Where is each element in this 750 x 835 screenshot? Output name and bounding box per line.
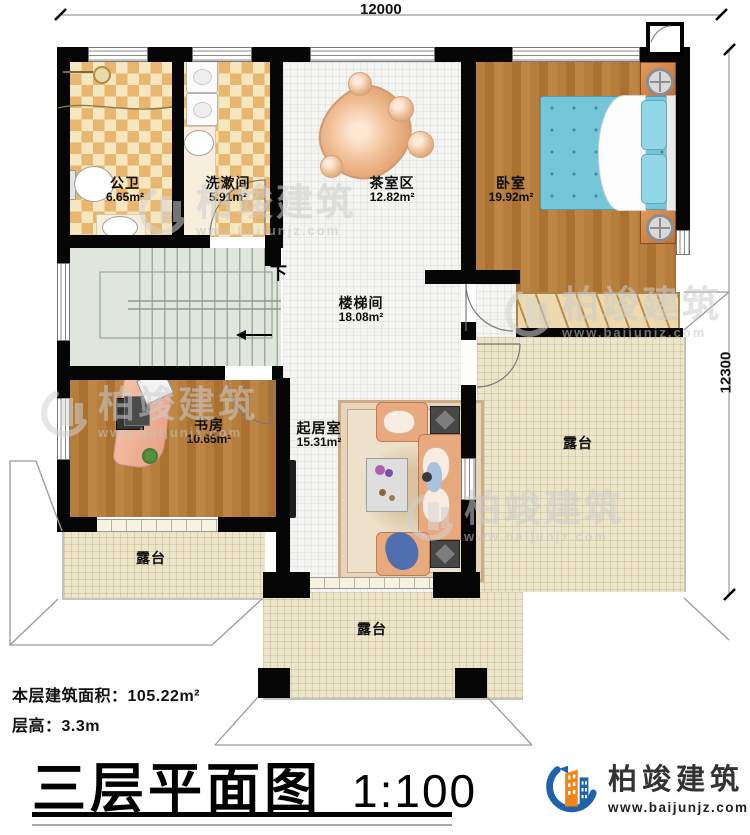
room-area: 19.92m²: [489, 191, 534, 204]
wall-study-terrace-right: [218, 517, 290, 532]
brand-text: 柏竣建筑 www.baijunjz.com: [608, 766, 749, 815]
nightstand-bottom: [640, 208, 676, 244]
dish-decor: [379, 489, 386, 496]
tea-stone-2: [388, 96, 414, 122]
room-name: 茶室区: [370, 176, 415, 191]
wall-corridor-terrace-stub: [461, 322, 476, 340]
wall-study-terrace-left: [57, 517, 97, 532]
terrace-label-left: 露台: [136, 551, 166, 566]
coffee-table: [366, 458, 408, 512]
pillow-2: [641, 154, 667, 204]
room-name: 洗漱间: [206, 176, 251, 191]
floor-height-value: 3.3m: [62, 718, 100, 735]
terrace-name: 露台: [563, 436, 593, 451]
room-label-living-room: 起居室 15.31m²: [297, 421, 342, 449]
terrace-label-bottom: 露台: [357, 622, 387, 637]
shower-head: [93, 66, 111, 84]
tea-stone-1: [348, 72, 372, 96]
cushion: [383, 410, 415, 434]
window-study: [57, 398, 70, 460]
flower-decor: [385, 469, 393, 477]
terrace-right-floor: [477, 337, 686, 592]
room-area: 10.65m²: [187, 433, 232, 446]
side-table-top: [430, 406, 460, 434]
brand-footer: 柏竣建筑 www.baijunjz.com: [538, 762, 749, 818]
window-bedroom-right: [676, 230, 690, 255]
pillar-right: [455, 668, 487, 698]
floor-plan-canvas: 公卫 6.65m² 洗漱间 5.91m² 茶室区 12.82m² 卧室 19.9…: [0, 0, 750, 835]
wall-wash-tea: [270, 47, 283, 248]
lamp-icon: [646, 214, 674, 242]
room-label-tea-area: 茶室区 12.82m²: [370, 176, 415, 204]
plant: [142, 448, 158, 464]
terrace-label-right: 露台: [563, 436, 593, 451]
wall-bath-wash: [172, 47, 184, 248]
wall-wash-bottom-stub: [265, 235, 283, 248]
study-terrace-threshold: [97, 519, 218, 532]
room-label-bathroom: 公卫 6.65m²: [106, 176, 144, 204]
wall-stair-study-left: [57, 366, 225, 380]
pillow-1: [641, 100, 667, 150]
wall-bedroom-right: [676, 47, 690, 230]
room-label-study: 书房 10.65m²: [187, 418, 232, 446]
room-name: 起居室: [297, 421, 342, 436]
floor-area-value: 105.22m²: [128, 688, 201, 705]
floor-height-info: 层高：3.3m: [12, 712, 100, 736]
tea-stone-3: [407, 131, 434, 158]
stair-treads: [128, 248, 281, 366]
brand-url: www.baijunjz.com: [608, 800, 749, 815]
tea-stone-4: [320, 155, 343, 178]
wall-bedroom-bottom: [425, 270, 520, 284]
window-tea-area: [310, 47, 435, 62]
room-label-stairwell: 楼梯间 18.08m²: [339, 296, 384, 324]
brand-name: 柏竣建筑: [608, 766, 749, 795]
study-floor: [70, 380, 276, 517]
room-area: 12.82m²: [370, 191, 415, 204]
room-name: 卧室: [489, 176, 534, 191]
room-area: 15.31m²: [297, 436, 342, 449]
stair-down-label: 下: [270, 259, 287, 284]
wall-living-bottom-left: [263, 572, 310, 598]
wall-living-bottom-right: [433, 572, 480, 598]
wall-bath-bottom: [57, 235, 210, 248]
vestibule-floor: [476, 284, 516, 340]
dim-tick: [724, 589, 735, 600]
room-label-bedroom: 卧室 19.92m²: [489, 176, 534, 204]
drawing-title: 三层平面图 1:100: [32, 744, 477, 823]
dim-tick: [55, 9, 66, 20]
bed-blanket: [598, 95, 646, 211]
wall-living-terrace-upper: [461, 385, 476, 458]
washroom-sink: [184, 130, 214, 156]
floor-area-label: 本层建筑面积：: [12, 688, 128, 705]
side-table-bottom: [430, 540, 460, 568]
floor-area-info: 本层建筑面积：105.22m²: [12, 682, 200, 706]
chimney: [646, 22, 684, 56]
bathroom-floor: [70, 62, 173, 237]
terrace-name: 露台: [357, 622, 387, 637]
wall-study-living: [276, 378, 290, 598]
room-area: 18.08m²: [339, 311, 384, 324]
wall-tea-bedroom: [461, 47, 476, 272]
room-name: 书房: [187, 418, 232, 433]
room-area: 5.91m²: [206, 191, 251, 204]
window-bathroom: [88, 47, 148, 62]
brand-logo-icon: [538, 762, 600, 818]
lamp-icon: [646, 68, 674, 96]
person-head: [422, 472, 432, 482]
pillar-left: [258, 668, 290, 698]
dim-tick: [724, 44, 735, 55]
living-terrace-threshold: [310, 577, 433, 589]
room-label-washroom: 洗漱间 5.91m²: [206, 176, 251, 204]
floor-height-label: 层高：: [12, 718, 62, 735]
room-area: 6.65m²: [106, 191, 144, 204]
sofa-right: [418, 434, 466, 540]
nightstand-top: [640, 62, 676, 98]
window-living-terrace: [461, 458, 476, 500]
terrace-name: 露台: [136, 551, 166, 566]
window-stairwell: [57, 263, 70, 341]
dish-decor: [389, 495, 395, 501]
dim-tick: [716, 9, 727, 20]
cushion: [422, 487, 450, 523]
washing-machine-2: [186, 93, 218, 126]
drawing-scale: 1:100: [352, 764, 477, 818]
drawing-title-text: 三层平面图: [32, 744, 322, 823]
dim-right-value: 12300: [718, 342, 735, 404]
room-name: 楼梯间: [339, 296, 384, 311]
title-underline-thin: [32, 824, 452, 826]
wardrobe-base-wall: [516, 328, 683, 337]
dim-top-value: 12000: [360, 1, 402, 18]
bed-headboard: [666, 95, 676, 211]
room-name: 公卫: [106, 176, 144, 191]
wardrobe: [516, 292, 680, 332]
window-washroom: [192, 47, 252, 62]
washing-machine-1: [186, 60, 218, 93]
window-bedroom-top: [512, 47, 640, 62]
flower-decor: [375, 465, 385, 475]
